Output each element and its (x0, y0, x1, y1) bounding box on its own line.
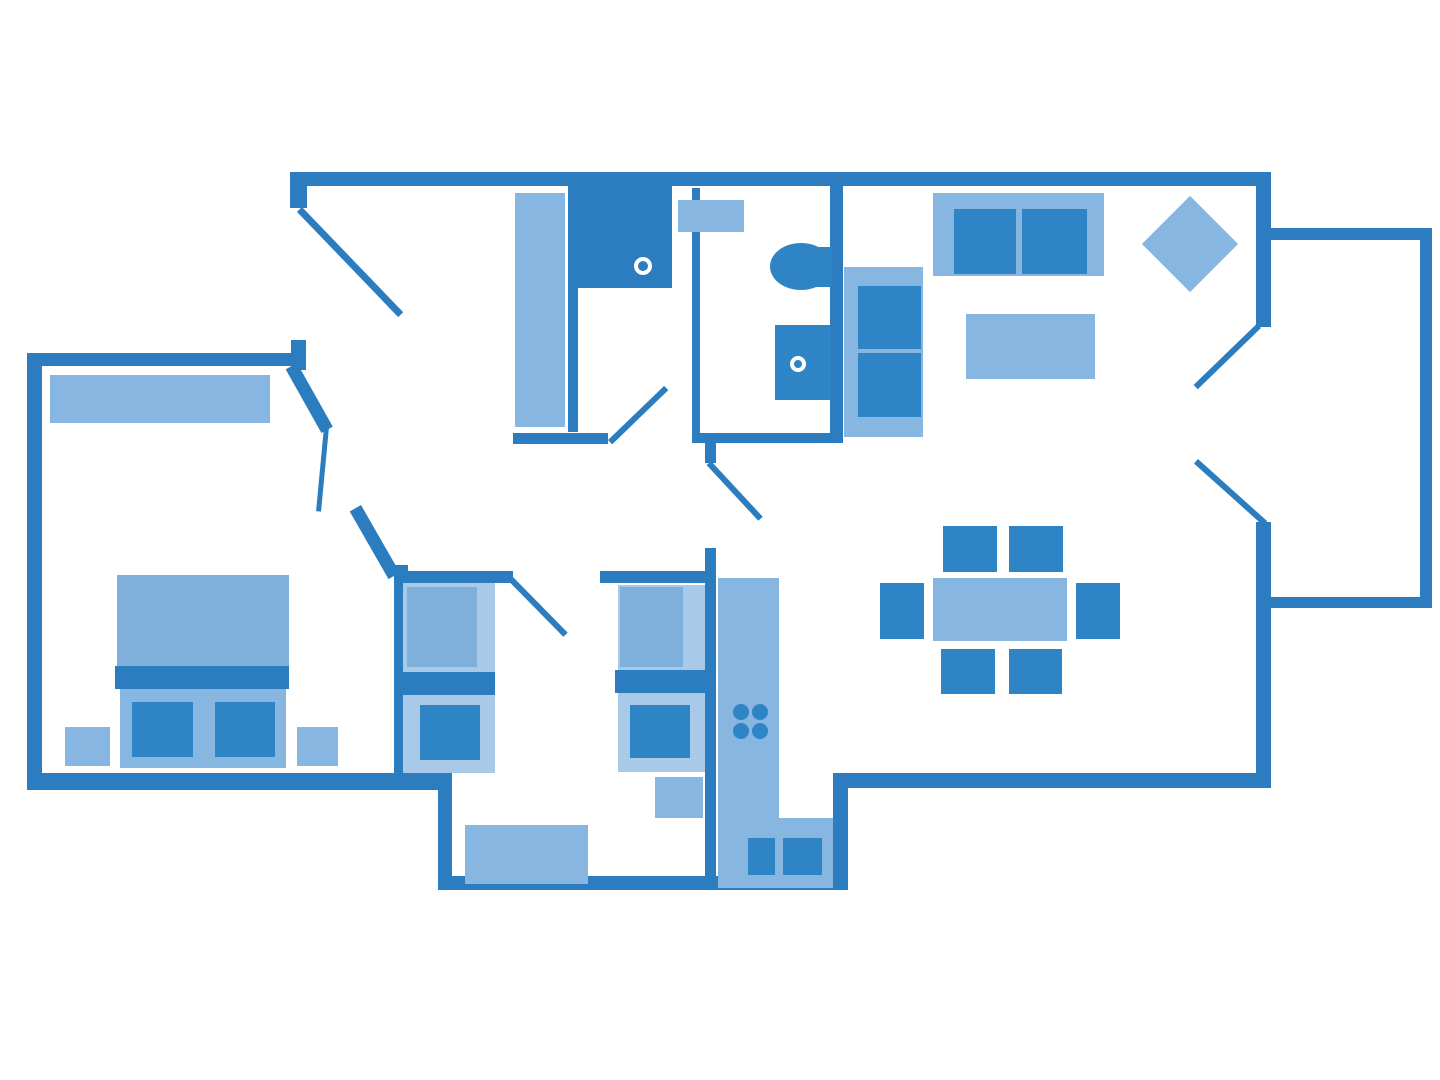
master-bottom-wall (27, 773, 452, 790)
balcony-door-leaf-lower (1194, 459, 1267, 525)
twin-bed-left-pillow (420, 705, 480, 760)
dining-chair-left (880, 583, 924, 639)
stove-burner-4 (752, 723, 768, 739)
sofa-cushion-left (954, 209, 1016, 274)
twin-top-wall-right (600, 571, 711, 583)
loveseat-cushion-bottom (858, 353, 921, 417)
dining-chair-top-1 (943, 526, 997, 572)
twin-desk (465, 825, 588, 884)
closet-partition-wall (568, 186, 578, 432)
dining-chair-top-2 (1009, 526, 1063, 572)
dining-chair-bottom-1 (941, 649, 995, 694)
toilet-bowl (770, 243, 832, 290)
master-top-wall (27, 353, 305, 366)
master-bed-duvet (117, 575, 289, 666)
right-wall-upper (1256, 172, 1271, 327)
stove-burner-2 (752, 704, 768, 720)
coffee-table (966, 314, 1095, 379)
nightstand-right (297, 727, 338, 766)
entry-corner-wall (290, 172, 307, 208)
master-wardrobe (50, 375, 270, 423)
bathroom-bottom-wall (692, 433, 843, 443)
loveseat-cushion-top (858, 286, 921, 349)
master-bed-band (115, 666, 289, 689)
dining-table (933, 578, 1067, 641)
top-wall (290, 172, 1271, 186)
twin-bed-right-duvet (620, 587, 683, 667)
stove-burner-1 (733, 704, 749, 720)
kitchen-sink-right (783, 838, 822, 875)
master-pillow-left (132, 702, 193, 757)
bumpout-left-wall (438, 773, 452, 890)
master-door-leaf (316, 427, 329, 512)
hall-wardrobe (515, 193, 565, 427)
shower-drain (634, 257, 652, 275)
balcony-right-wall (1420, 228, 1432, 608)
twin-bed-right-pillow (630, 705, 690, 758)
right-wall-lower (1256, 522, 1271, 788)
master-door-angled-wall (286, 363, 333, 433)
kitchen-sink-left (748, 838, 775, 875)
balcony-door-leaf-upper (1194, 324, 1261, 389)
kitchen-right-wall (833, 773, 848, 890)
hall-door-leaf (707, 461, 763, 521)
shower (578, 185, 672, 288)
bathroom-shelf (678, 200, 744, 232)
rug-diamond (1142, 196, 1238, 292)
dining-chair-bottom-2 (1009, 649, 1062, 694)
twin-bed-left-band (403, 672, 495, 695)
closet-bottom-wall (513, 433, 608, 444)
twin-top-wall-left (400, 571, 513, 583)
nightstand-left (65, 727, 110, 766)
living-bottom-wall (833, 773, 1271, 788)
balcony-bottom-wall (1262, 597, 1432, 608)
sofa-cushion-right (1022, 209, 1087, 274)
hall-angled-wall (350, 505, 400, 579)
twin-door-leaf (509, 577, 568, 637)
front-door-leaf (297, 207, 403, 317)
twin-side-table (655, 777, 703, 818)
stove-burner-3 (733, 723, 749, 739)
twin-bed-right-band (615, 670, 705, 693)
floor-plan (0, 0, 1440, 1080)
sink-drain (790, 356, 806, 372)
kitchen-divider-wall (705, 548, 716, 890)
twin-bed-left-duvet (407, 587, 477, 667)
master-left-wall (27, 353, 42, 790)
master-pillow-right (215, 702, 275, 757)
balcony-top-wall (1262, 228, 1432, 240)
bathroom-living-wall (830, 172, 843, 443)
closet-door-leaf (608, 386, 668, 444)
dining-chair-right (1076, 583, 1120, 639)
